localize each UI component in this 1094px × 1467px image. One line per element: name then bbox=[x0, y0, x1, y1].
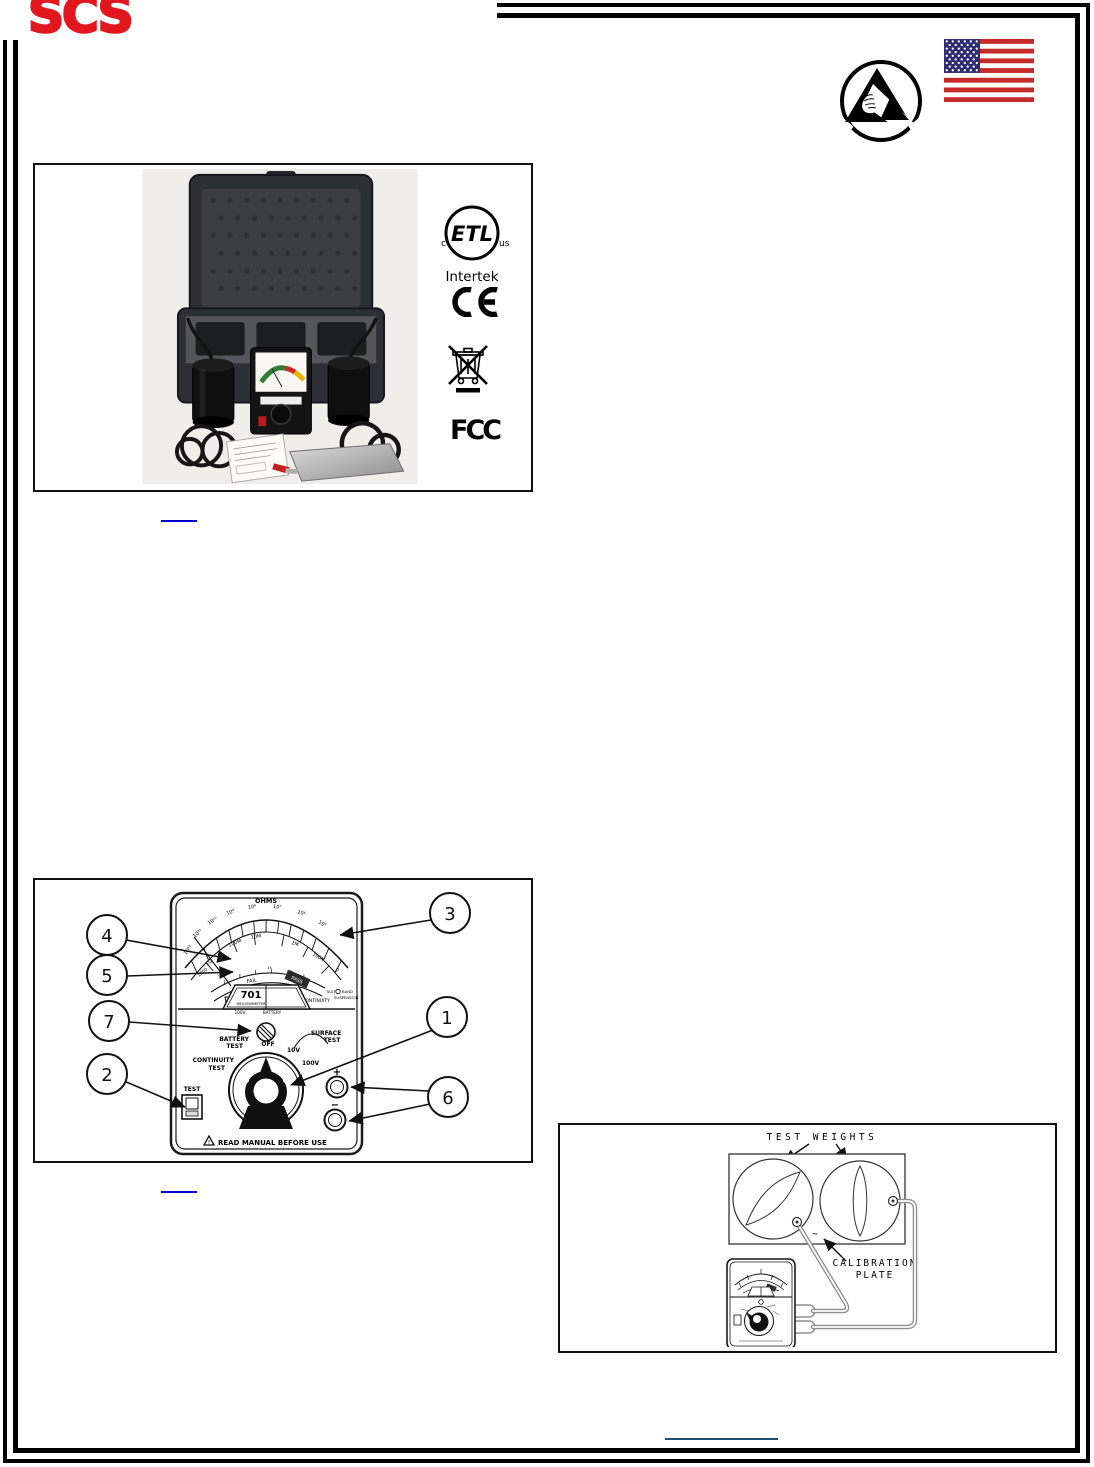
ce-mark-icon bbox=[445, 287, 501, 317]
intertek-label: Intertek bbox=[445, 269, 498, 285]
svg-text:!: ! bbox=[208, 1140, 210, 1146]
svg-text:CONTINUITY: CONTINUITY bbox=[193, 1057, 235, 1064]
us-flag-icon bbox=[944, 39, 1034, 102]
megohmmeter-photo bbox=[251, 348, 312, 434]
negative-jack[interactable] bbox=[325, 1110, 346, 1131]
etl-c-mark: c bbox=[441, 239, 446, 249]
calibration-label-line1: CALIBRATION bbox=[833, 1258, 918, 1269]
figure2-caption-link[interactable] bbox=[161, 1191, 197, 1193]
model-name: MEGOHMMETER bbox=[236, 1002, 266, 1006]
document-page: SCS bbox=[0, 0, 1094, 1467]
model-number: 701 bbox=[241, 990, 262, 1001]
battery-window-label: BATTERY bbox=[263, 1010, 282, 1015]
border-gap-left bbox=[0, 0, 29, 40]
callout-2: 2 bbox=[101, 1065, 112, 1086]
rotary-selector-knob[interactable] bbox=[229, 1053, 303, 1129]
footer-link[interactable] bbox=[665, 1438, 778, 1440]
svg-text:TEST: TEST bbox=[324, 1037, 342, 1044]
svg-text:TEST: TEST bbox=[208, 1065, 226, 1072]
etl-letters: ETL bbox=[451, 222, 493, 246]
callout-6: 6 bbox=[442, 1088, 453, 1109]
callout-1: 1 bbox=[441, 1008, 452, 1029]
svg-text:100V: 100V bbox=[302, 1060, 320, 1067]
positive-jack[interactable] bbox=[327, 1077, 348, 1098]
etl-intertek-icon: ETL c us Intertek bbox=[435, 205, 531, 289]
scale-tick-label: 10⁷ bbox=[273, 904, 282, 911]
figure1-caption-link[interactable] bbox=[161, 520, 197, 522]
svg-text:BATTERY: BATTERY bbox=[219, 1036, 249, 1043]
callout-7: 7 bbox=[103, 1012, 114, 1033]
calibration-label-line2: PLATE bbox=[856, 1270, 895, 1281]
tilde-mark: ~ bbox=[812, 1229, 818, 1240]
svg-text:SUSPENSION: SUSPENSION bbox=[334, 995, 359, 1000]
callout-4: 4 bbox=[101, 926, 112, 947]
battery-scale-tick: 14 bbox=[267, 965, 272, 970]
svg-text:SURFACE: SURFACE bbox=[311, 1030, 341, 1037]
svg-text:10V: 10V bbox=[287, 1047, 300, 1054]
calibration-screw bbox=[257, 1023, 275, 1042]
esd-susceptibility-icon bbox=[832, 55, 930, 147]
callout-5: 5 bbox=[101, 966, 112, 987]
scs-logo: SCS bbox=[28, 0, 132, 40]
calibration-diagram: TEST WEIGHTS ~ CALIBRATION PLATE bbox=[560, 1125, 1051, 1347]
etl-us-mark: us bbox=[499, 239, 510, 249]
fcc-mark-icon: FCC bbox=[449, 408, 501, 448]
fcc-letters: FCC bbox=[450, 415, 501, 446]
svg-text:TAUT: TAUT bbox=[325, 989, 336, 994]
figure2-meter-diagram-box: OHMS 10¹² 10¹¹ 10¹⁰ 10⁹ 10⁸ 10⁷ 10⁶ bbox=[33, 878, 533, 1163]
svg-text:OFF: OFF bbox=[261, 1041, 274, 1048]
figure1-product-kit-box: ETL c us Intertek bbox=[33, 163, 533, 492]
figure3-calibration-diagram-box: TEST WEIGHTS ~ CALIBRATION PLATE bbox=[558, 1123, 1057, 1353]
model-plate: 701 MEGOHMMETER bbox=[223, 985, 310, 1009]
callout-3: 3 bbox=[444, 904, 455, 925]
mini-meter bbox=[727, 1259, 815, 1347]
voltage-window-label: 100V bbox=[235, 1010, 246, 1015]
test-weights-label: TEST WEIGHTS bbox=[767, 1132, 878, 1143]
weee-bin-icon bbox=[447, 343, 491, 395]
meter-diagram: OHMS 10¹² 10¹¹ 10¹⁰ 10⁹ 10⁸ 10⁷ 10⁶ bbox=[35, 880, 527, 1157]
product-photo bbox=[140, 169, 420, 484]
svg-text:TEST: TEST bbox=[226, 1043, 244, 1050]
test-switch-label: TEST bbox=[184, 1086, 202, 1093]
svg-text:BAND: BAND bbox=[342, 989, 353, 994]
warning-text: READ MANUAL BEFORE USE bbox=[218, 1139, 327, 1147]
instruction-manual bbox=[227, 434, 289, 483]
